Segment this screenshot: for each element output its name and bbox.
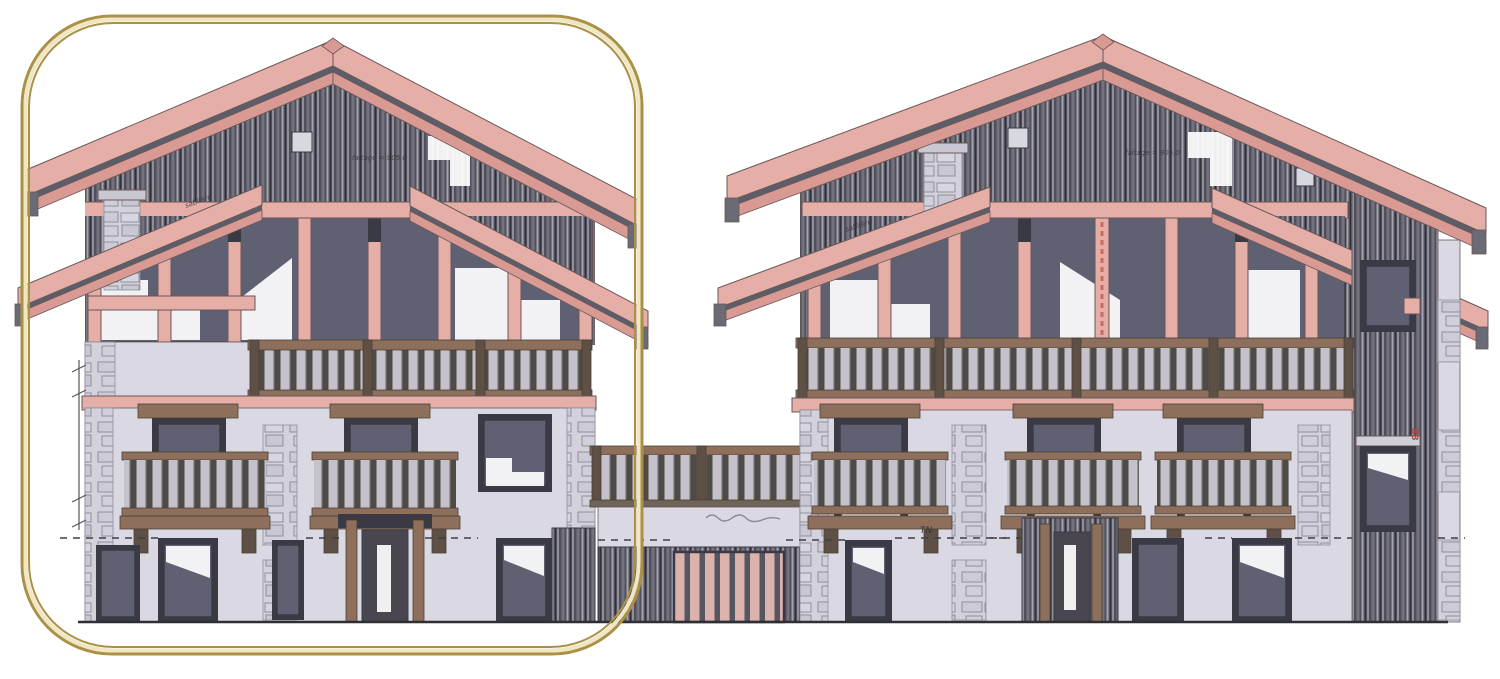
left-lower-facade — [85, 404, 595, 622]
dimension-ticks — [72, 360, 86, 530]
ground-floor-window — [1132, 538, 1184, 622]
wing-vent — [1404, 298, 1420, 314]
connector-balcony — [590, 446, 810, 507]
first-floor-window — [478, 414, 552, 492]
corbel — [1117, 529, 1131, 553]
door-post — [413, 520, 424, 622]
balcony-railing — [1157, 460, 1289, 510]
architectural-elevation: faitage = 905.0 sablière — [0, 0, 1500, 679]
stone-strip — [567, 408, 595, 530]
terrain-label: TN — [920, 526, 932, 536]
left-chalet: faitage = 905.0 sablière — [15, 38, 648, 622]
balcony-railing — [250, 350, 590, 390]
ground-floor-window — [272, 540, 304, 620]
ground-floor-window — [158, 538, 218, 622]
corbel — [824, 529, 838, 553]
eave-end-cap — [725, 198, 739, 222]
red-dimension-marker: 88 — [1409, 428, 1419, 441]
entry-door — [338, 514, 432, 622]
door-post — [346, 520, 357, 622]
ground-floor-window — [1232, 538, 1292, 622]
garage-door — [674, 552, 784, 622]
door-post — [1092, 524, 1102, 622]
corbel — [242, 529, 256, 553]
right-lower-facade — [800, 404, 1352, 622]
right-chalet: 88 — [714, 34, 1488, 622]
balcony-railing — [314, 460, 456, 512]
balcony-railing — [124, 460, 266, 512]
wing-window — [1360, 260, 1416, 332]
door-glass-slot — [1064, 545, 1076, 610]
ground-floor-window — [496, 538, 552, 622]
entry-door — [1022, 518, 1118, 622]
gable-window — [1008, 128, 1028, 148]
door-glass-slot — [377, 545, 391, 612]
gable-window — [292, 132, 312, 152]
dark-cladding-patch — [552, 528, 595, 622]
left-upper-balcony — [82, 340, 596, 410]
balcony-railing — [814, 460, 946, 510]
eave-end-cap — [1476, 327, 1488, 349]
corbel — [432, 529, 446, 553]
mid-beam — [88, 296, 255, 310]
eave-end-cap — [1472, 230, 1486, 254]
door-post — [1040, 524, 1050, 622]
ground-floor-window — [96, 545, 140, 622]
stone-strip — [1298, 425, 1330, 545]
ridge-height-label: faitage = 905.0 — [352, 154, 407, 162]
balcony-railing — [1007, 460, 1139, 510]
eave-end-cap — [714, 304, 726, 326]
right-upper-balcony — [792, 338, 1354, 412]
head-beam — [82, 202, 592, 218]
right-wing: 88 — [1352, 192, 1460, 622]
garage-header — [598, 507, 808, 547]
ridge-height-label: faitage = 905.0 — [1125, 149, 1180, 157]
ground-floor-window — [845, 540, 892, 622]
wing-window — [1360, 446, 1416, 532]
stone-strip — [952, 425, 986, 545]
stone-pier — [952, 560, 986, 620]
corbel — [324, 529, 338, 553]
connector-garage — [590, 446, 810, 622]
